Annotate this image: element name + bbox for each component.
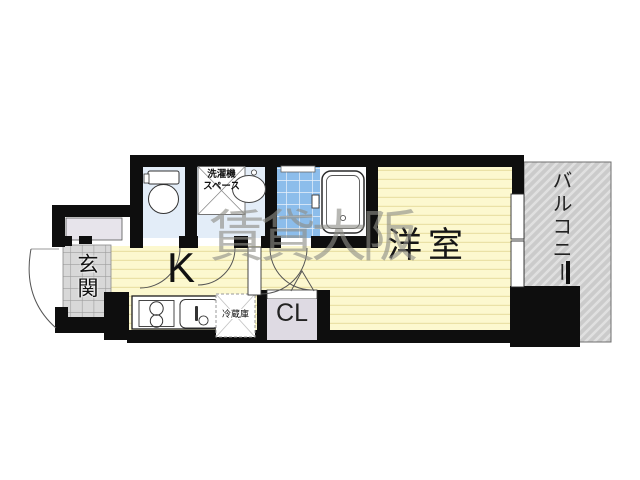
floorplan-page: 洗濯機 スペース 玄関 K CL 冷蔵庫 洋室 バルコニー 賃貸大阪 <box>0 0 640 480</box>
window-sash-lower <box>511 241 524 287</box>
washbasin-faucet <box>251 170 256 175</box>
wall-entrance-top <box>52 205 143 217</box>
stove <box>139 301 174 327</box>
toilet-bowl <box>149 185 179 214</box>
wall-room-right-upper <box>512 155 524 195</box>
wall-stub <box>57 236 72 246</box>
closet-label: CL <box>266 301 318 326</box>
balcony-label: バルコニー <box>550 170 570 285</box>
wall-stub <box>79 236 92 244</box>
closet-door-track <box>267 290 317 299</box>
balcony-window <box>511 194 524 287</box>
entrance-door-arc <box>29 249 56 328</box>
shoe-cabinet <box>66 218 122 240</box>
toilet-flush-handle <box>144 174 149 183</box>
wall-seg <box>130 236 141 248</box>
washer-space-label: 洗濯機 スペース <box>196 169 247 194</box>
watermark: 賃貸大阪 <box>209 209 413 265</box>
refrigerator-label: 冷蔵庫 <box>215 310 256 319</box>
wall-closet-right <box>317 290 330 340</box>
window-sash-upper <box>511 194 524 239</box>
wall-toilet-left <box>130 155 143 248</box>
wall-corner-block <box>510 286 580 347</box>
entrance-label: 玄関 <box>76 253 97 301</box>
wall-kitchen-corner <box>104 292 129 340</box>
kitchen-label: K <box>167 247 195 289</box>
toilet-tank <box>148 171 179 184</box>
sink-drain <box>199 316 208 325</box>
sink-faucet <box>195 306 198 321</box>
refrigerator-label-text: 冷蔵庫 <box>221 309 250 319</box>
kitchen-sink <box>180 300 219 329</box>
shower-counter <box>281 166 315 172</box>
